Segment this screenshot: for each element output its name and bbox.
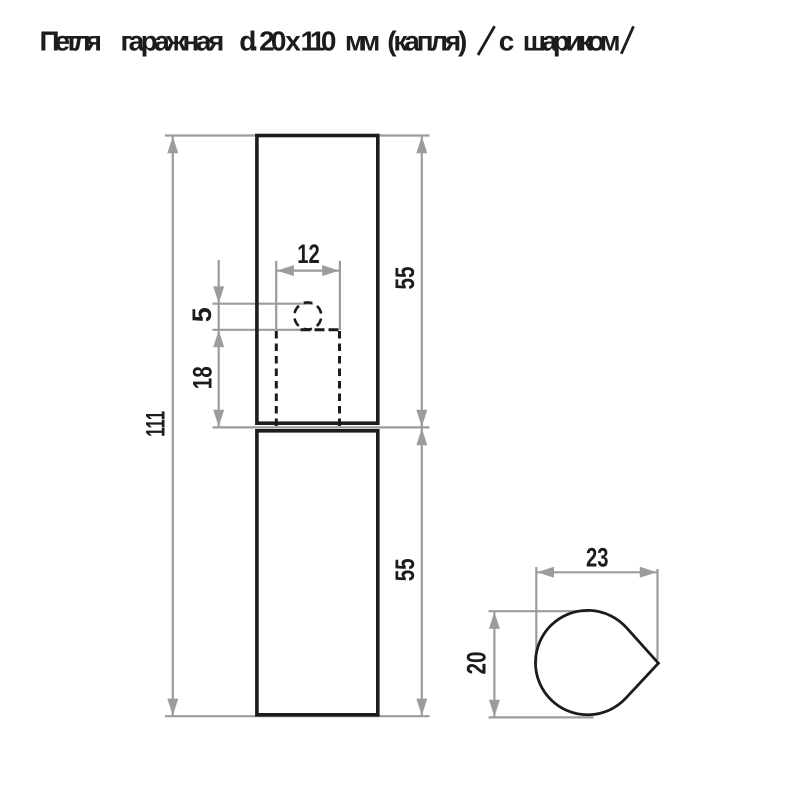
svg-text:20: 20 [462,652,492,675]
svg-text:Петлягаражнаяd.20x110мм(капля): Петлягаражнаяd.20x110мм(капля)сшариком [40,26,621,57]
svg-text:18: 18 [188,366,218,389]
svg-text:55: 55 [390,267,420,290]
svg-text:111: 111 [141,411,171,437]
svg-text:55: 55 [390,558,420,581]
svg-text:5: 5 [187,307,217,322]
svg-text:23: 23 [586,542,609,572]
svg-text:12: 12 [297,239,320,269]
